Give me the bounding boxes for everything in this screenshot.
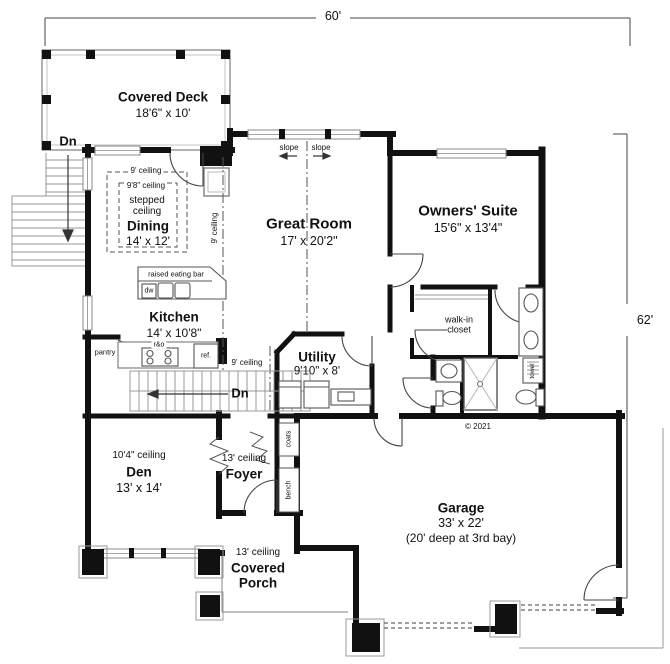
room-label-garage: Garage xyxy=(438,501,485,515)
foyer-ceiling-label: 13' ceiling xyxy=(222,454,266,464)
den-ceiling-label: 10'4" ceiling xyxy=(112,451,165,461)
bath-fixtures xyxy=(415,288,544,410)
stairs-down-label-deck: Dn xyxy=(59,135,76,148)
porch-posts xyxy=(79,546,520,656)
stairs-down-label-interior: Dn xyxy=(231,387,248,400)
room-size-den: 13' x 14' xyxy=(116,482,162,495)
coats-label: coats xyxy=(286,431,293,448)
room-label-covered-deck: Covered Deck xyxy=(118,90,208,104)
room-label-covered-porch-1: Covered xyxy=(231,561,285,575)
walk-in-closet-label-1: walk-in xyxy=(445,316,473,325)
dishwasher-label: dw xyxy=(145,288,154,295)
room-size-great-room: 17' x 20'2" xyxy=(280,235,337,248)
copyright-label: © 2021 xyxy=(465,423,491,431)
exterior-stairs xyxy=(12,153,88,266)
dimension-width-label: 60' xyxy=(325,10,341,23)
dimension-height-label: 62' xyxy=(637,314,653,327)
range-label: r&o xyxy=(152,342,167,349)
slope-arrows xyxy=(280,153,330,159)
chase-block xyxy=(200,146,232,196)
floor-plan-drawing xyxy=(0,0,670,664)
dining-inner-ceiling-label: 9'8" ceiling xyxy=(125,182,167,190)
room-label-owners-suite: Owners' Suite xyxy=(418,204,517,219)
room-label-den: Den xyxy=(126,465,152,479)
slope-label-right: slope xyxy=(311,144,330,152)
room-size-owners-suite: 15'6" x 13'4" xyxy=(434,222,503,235)
garage-note-label: (20' deep at 3rd bay) xyxy=(406,532,516,544)
eating-bar-label: raised eating bar xyxy=(146,270,206,278)
walk-in-closet-label-2: closet xyxy=(447,326,471,335)
porch-ceiling-label: 13' ceiling xyxy=(236,548,280,558)
room-label-covered-porch-2: Porch xyxy=(239,576,277,590)
room-size-kitchen: 14' x 10'8" xyxy=(147,327,202,339)
room-size-garage: 33' x 22' xyxy=(438,517,484,530)
slope-label-left: slope xyxy=(279,144,298,152)
floor-plan: 60' 62' Covered Deck 18'6" x 10' Dn 9' c… xyxy=(0,0,670,664)
dining-outer-ceiling-label: 9' ceiling xyxy=(129,167,164,175)
fridge-label: ref. xyxy=(199,353,213,360)
room-label-great-room: Great Room xyxy=(266,217,352,232)
room-label-foyer: Foyer xyxy=(226,467,263,481)
room-label-dining: Dining xyxy=(127,219,169,233)
utility-fixtures xyxy=(279,381,371,408)
dining-stepped-label-2: ceiling xyxy=(133,207,161,217)
dining-stepped-label-1: stepped xyxy=(129,196,165,206)
ceiling-break-label: 9' ceiling xyxy=(211,211,219,246)
pantry-label: pantry xyxy=(95,348,116,356)
bench-label: bench xyxy=(286,480,293,499)
towel-label: towel xyxy=(530,363,537,378)
room-size-dining: 14' x 12' xyxy=(126,235,170,247)
room-size-utility: 9'10" x 8' xyxy=(294,366,340,378)
room-label-kitchen: Kitchen xyxy=(149,310,199,324)
room-label-utility: Utility xyxy=(298,350,336,364)
room-size-covered-deck: 18'6" x 10' xyxy=(136,107,191,119)
hall-ceiling-label: 9' ceiling xyxy=(230,359,265,367)
